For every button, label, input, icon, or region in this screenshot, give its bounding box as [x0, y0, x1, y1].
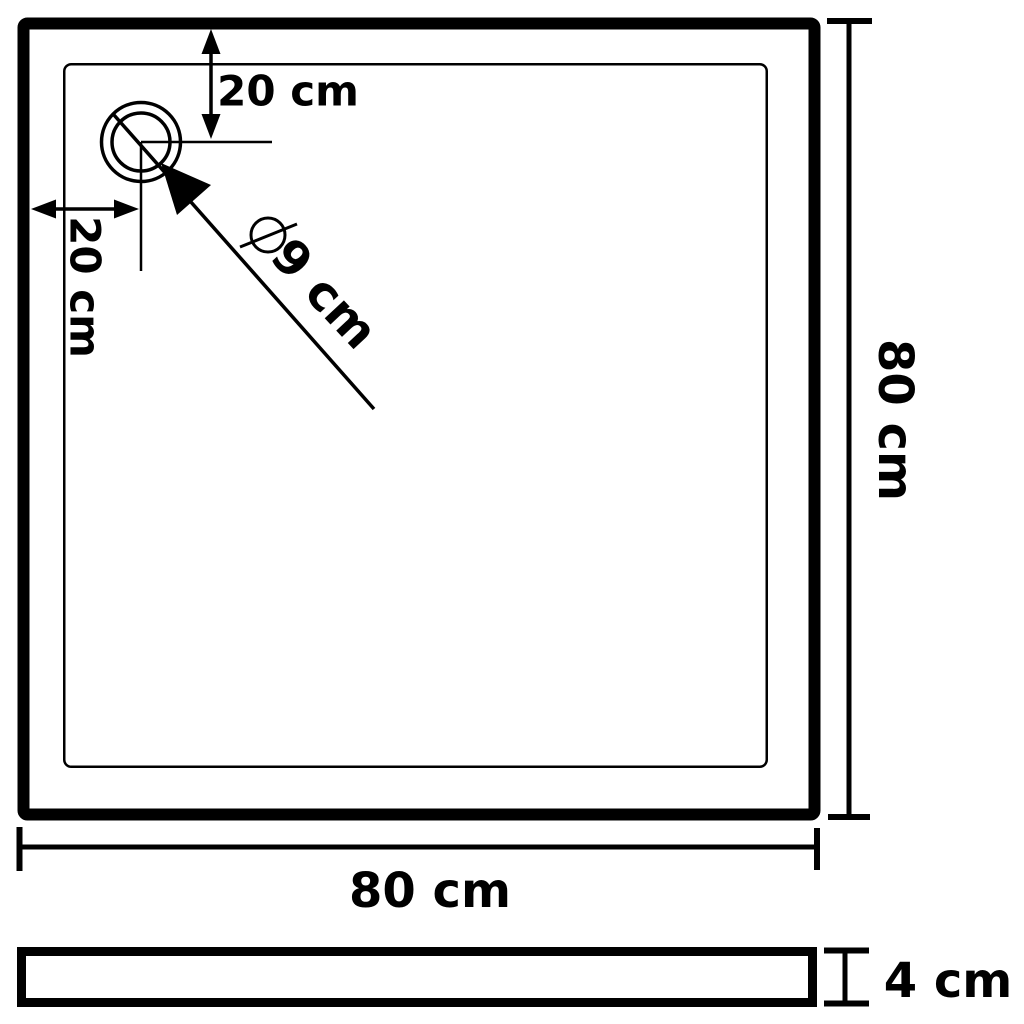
- side-view-outline: [22, 952, 813, 1003]
- dim-drain-diameter: 9 cm: [114, 115, 388, 409]
- side-view: [22, 952, 813, 1003]
- dim-drain-offset-top: 20 cm: [202, 29, 359, 139]
- drain-offset-top-label: 20 cm: [217, 67, 359, 116]
- top-view: [24, 24, 815, 815]
- dim-width-bottom: 80 cm: [19, 827, 817, 919]
- dim-drain-offset-left: 20 cm: [31, 200, 139, 358]
- arrow-down-icon: [202, 114, 221, 139]
- leader-arrowhead-icon: [161, 163, 211, 215]
- diagram-svg: 20 cm 20 cm 9 cm 80 cm: [0, 0, 1024, 1024]
- arrow-left-icon: [31, 200, 56, 219]
- width-label: 80 cm: [349, 863, 511, 919]
- dim-thickness: 4 cm: [824, 951, 1012, 1010]
- leader-line: [114, 115, 374, 409]
- thickness-label: 4 cm: [884, 953, 1013, 1009]
- shower-tray-dimension-diagram: 20 cm 20 cm 9 cm 80 cm: [0, 0, 1024, 1024]
- height-label: 80 cm: [867, 339, 923, 501]
- drain-offset-left-label: 20 cm: [61, 216, 110, 358]
- arrow-up-icon: [202, 29, 221, 54]
- dim-height-right: 80 cm: [827, 21, 923, 817]
- arrow-right-icon: [114, 200, 139, 219]
- drain-diameter-label: 9 cm: [260, 228, 389, 360]
